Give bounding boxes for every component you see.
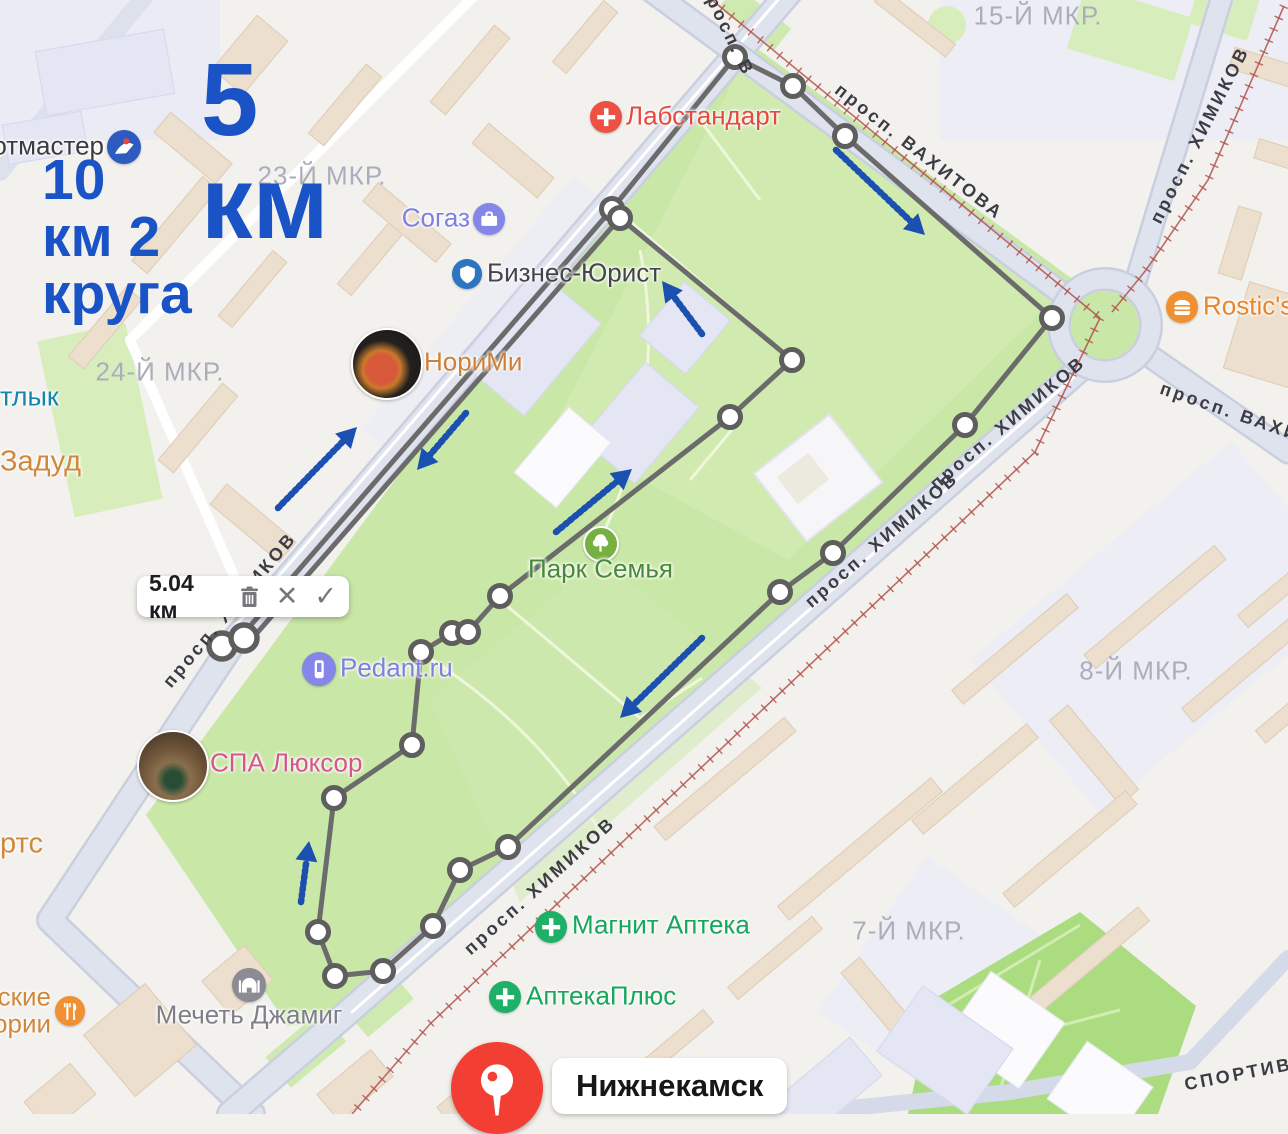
norimi-label[interactable]: НориМи: [424, 347, 522, 378]
pharmacy-cross-icon[interactable]: [535, 911, 567, 943]
route-vertex[interactable]: [835, 126, 856, 147]
stories-label-line1: ские: [0, 984, 51, 1011]
district-label: 15-Й МКР.: [974, 1, 1103, 32]
district-label: 24-Й МКР.: [96, 357, 225, 388]
burger-icon[interactable]: [1166, 291, 1198, 323]
spa-luxor-label[interactable]: СПА Люксор: [210, 748, 362, 779]
norimi-photo[interactable]: [351, 328, 423, 400]
cut-poi-label-tlyk[interactable]: тлык: [0, 382, 59, 413]
route-vertex[interactable]: [450, 860, 471, 881]
check-icon[interactable]: ✓: [314, 583, 337, 610]
sogaz-label[interactable]: Согаз: [402, 203, 470, 234]
pedant-label[interactable]: Pedant.ru: [340, 653, 453, 684]
rostics-label[interactable]: Rostic's: [1203, 291, 1288, 322]
phone-icon[interactable]: [302, 652, 336, 686]
route-vertex[interactable]: [458, 622, 479, 643]
route-vertex[interactable]: [324, 788, 345, 809]
route-vertex[interactable]: [720, 407, 741, 428]
route-vertex[interactable]: [823, 543, 844, 564]
route-vertex[interactable]: [373, 961, 394, 982]
placemark-pin-icon[interactable]: [451, 1042, 543, 1134]
distance-10km-text: 10 км 2 круга: [42, 152, 192, 323]
route-vertex[interactable]: [955, 415, 976, 436]
pharmacy-cross-icon[interactable]: [489, 981, 521, 1013]
ruler-measure-box: 5.04 км ✕ ✓: [137, 576, 349, 617]
route-vertex[interactable]: [1042, 308, 1063, 329]
park-semya-label[interactable]: Парк Семья: [528, 554, 673, 585]
stories-label[interactable]: скиеории: [0, 984, 51, 1039]
route-vertex[interactable]: [325, 966, 346, 987]
apteka-plus-label[interactable]: АптекаПлюс: [526, 981, 676, 1012]
route-vertex[interactable]: [770, 582, 791, 603]
route-vertex[interactable]: [402, 735, 423, 756]
cutlery-icon[interactable]: [55, 996, 85, 1026]
spa-luxor-photo[interactable]: [137, 730, 209, 802]
labstandart-label[interactable]: Лабстандарт: [626, 101, 781, 132]
route-vertex[interactable]: [490, 586, 511, 607]
shield-icon[interactable]: [452, 259, 482, 289]
district-label: 7-Й МКР.: [852, 916, 966, 947]
medical-cross-icon[interactable]: [590, 101, 622, 133]
ruler-distance-value: 5.04 км: [149, 570, 221, 624]
close-icon[interactable]: ✕: [276, 583, 299, 610]
map-stage: просп. ВАХИТОВАпросп. ХИМИКОВпросп. ВАХИ…: [0, 0, 1288, 1114]
briefcase-icon[interactable]: [473, 203, 505, 235]
route-vertex[interactable]: [231, 625, 257, 651]
biznes-yurist-label[interactable]: Бизнес-Юрист: [487, 258, 661, 289]
trash-icon[interactable]: [239, 586, 260, 608]
mosque-icon[interactable]: [232, 968, 266, 1002]
route-vertex[interactable]: [782, 350, 803, 371]
mechet-dzhamig-label[interactable]: Мечеть Джамиг: [156, 1000, 343, 1031]
route-vertex[interactable]: [610, 208, 631, 229]
stories-label-line2: ории: [0, 1011, 51, 1038]
cut-poi-label-rts[interactable]: ртс: [0, 828, 43, 861]
distance-5km-text: 5 км: [201, 48, 329, 254]
district-label: 8-Й МКР.: [1079, 656, 1193, 687]
route-vertex[interactable]: [423, 916, 444, 937]
route-vertex[interactable]: [308, 922, 329, 943]
magnit-apteka-label[interactable]: Магнит Аптека: [572, 910, 750, 941]
route-vertex[interactable]: [498, 837, 519, 858]
placemark-label: Нижнекамск: [552, 1058, 787, 1114]
cut-poi-label-zadud[interactable]: Задуд: [0, 446, 81, 479]
route-vertex[interactable]: [783, 76, 804, 97]
